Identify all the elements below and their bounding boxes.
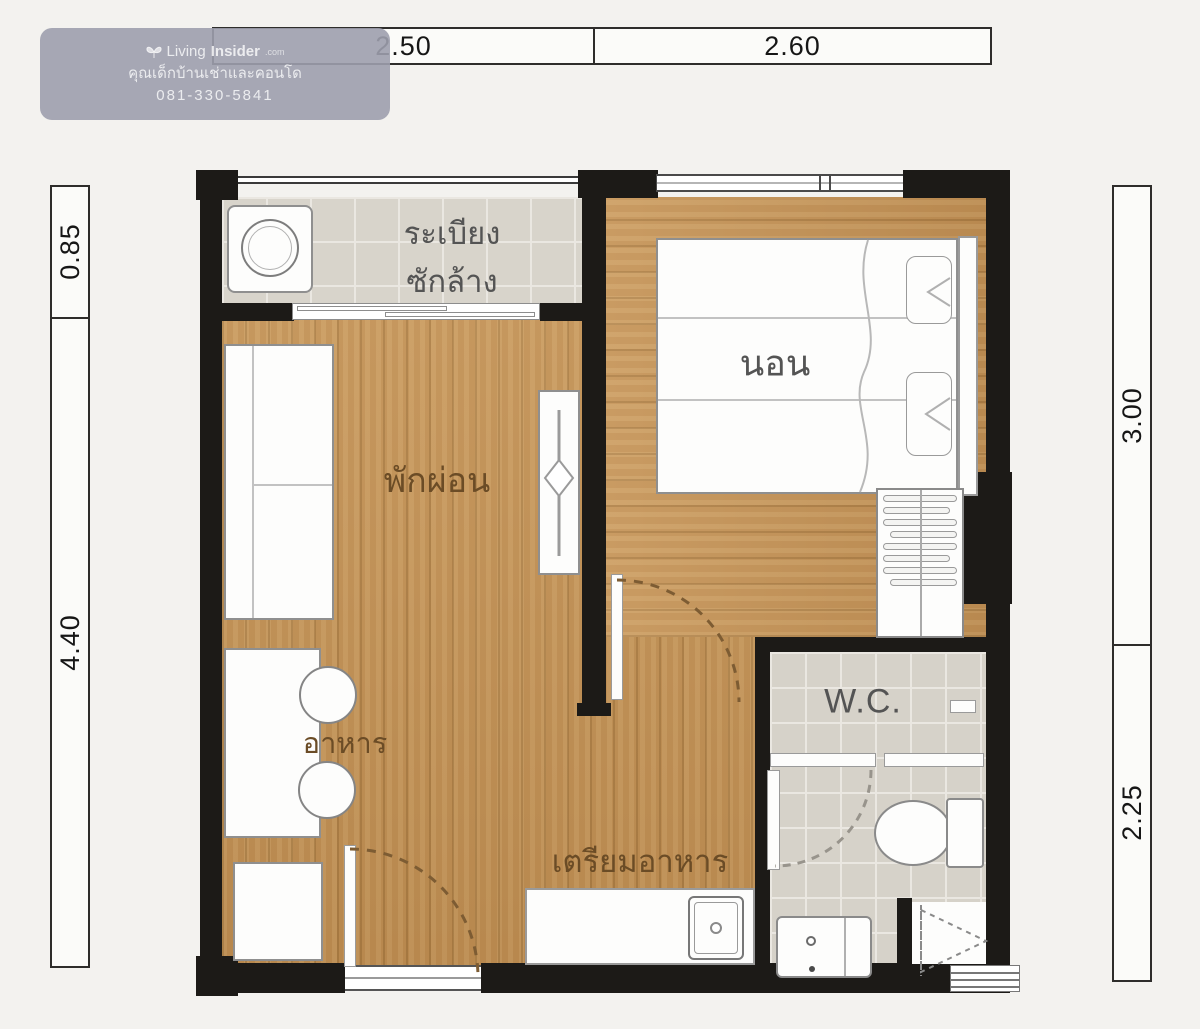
balcony-railing	[238, 176, 582, 184]
dimension-right-1: 3.00	[1114, 187, 1150, 644]
entrance-threshold	[345, 965, 481, 991]
watermark-badge: LivingInsider.com คุณเด็กบ้านเช่าและคอนโ…	[40, 28, 390, 120]
sliding-panel	[385, 312, 535, 317]
toilet-bowl	[874, 800, 952, 866]
balcony-label: ระเบียง ซักล้าง	[404, 210, 501, 306]
wall-top-middle	[578, 170, 658, 198]
dimension-bar-right: 3.00 2.25	[1112, 185, 1152, 982]
clothes-hanger	[890, 531, 957, 538]
kitchen-label: เตรียมอาหาร	[552, 836, 729, 886]
washing-machine-drum-inner	[248, 226, 292, 270]
louver-slat	[951, 986, 1019, 988]
sofa-cushion-line	[252, 484, 332, 486]
wc-shower-partition	[884, 753, 984, 767]
bedroom-window	[656, 174, 906, 192]
watermark-logo-light: Living	[167, 41, 206, 63]
tv-console	[538, 390, 580, 575]
bedroom-label: นอน	[740, 335, 811, 392]
pillow	[906, 256, 952, 324]
wc-shower-partition	[770, 753, 876, 767]
floor-plan-page: { "watermark": { "logo_icon": "butterfly…	[0, 0, 1200, 1029]
sofa	[224, 344, 334, 620]
balcony-label-line2: ซักล้าง	[404, 258, 501, 306]
washbasin-divider	[844, 918, 846, 976]
dimension-left-2-text: 4.40	[55, 614, 86, 671]
vent-louver	[950, 965, 1020, 992]
clothes-hanger	[883, 507, 950, 514]
dimension-left-1-text: 0.85	[55, 224, 86, 281]
watermark-tagline: คุณเด็กบ้านเช่าและคอนโด	[128, 63, 302, 85]
kitchen-sink	[688, 896, 744, 960]
dimension-right-2-text: 2.25	[1117, 785, 1148, 842]
bed-headboard	[958, 236, 978, 496]
dimension-right-2: 2.25	[1114, 644, 1150, 980]
balcony-label-line1: ระเบียง	[404, 210, 501, 258]
washing-machine-drum	[241, 219, 299, 277]
wall-living-bedroom	[582, 197, 606, 707]
clothes-hanger	[890, 579, 957, 586]
threshold-line	[345, 977, 481, 979]
dimension-bar-left: 0.85 4.40	[50, 185, 90, 968]
wall-wc-front	[755, 637, 1010, 652]
toilet-tank	[946, 798, 984, 868]
window-glass-line	[657, 182, 905, 184]
bedroom-door-leaf	[611, 574, 623, 700]
window-mullion	[819, 176, 821, 190]
dimension-left-1: 0.85	[52, 187, 88, 317]
wall-shaft-divider	[897, 898, 912, 965]
wardrobe-rail	[920, 490, 922, 636]
sliding-panel	[297, 306, 447, 311]
wall-left	[200, 170, 222, 993]
louver-slat	[951, 979, 1019, 981]
washbasin	[776, 916, 872, 978]
washbasin-faucet	[806, 936, 816, 946]
wardrobe	[876, 488, 964, 638]
refrigerator	[233, 862, 323, 961]
pillow	[906, 372, 952, 456]
kitchen-faucet	[710, 922, 722, 934]
dimension-left-2: 4.40	[52, 317, 88, 966]
louver-slat	[951, 972, 1019, 974]
wc-label: W.C.	[824, 683, 902, 722]
washbasin-drain	[809, 966, 815, 972]
watermark-logo-row: LivingInsider.com	[146, 41, 285, 63]
wall-end-cap	[577, 703, 611, 716]
dining-stool	[299, 666, 357, 724]
service-shaft	[912, 902, 986, 964]
wall-bottom-segment-2	[481, 963, 1010, 993]
wc-door-leaf	[767, 770, 780, 870]
window-mullion	[829, 176, 831, 190]
dimension-top-2: 2.60	[593, 29, 990, 63]
watermark-logo-bold: Insider	[211, 41, 260, 63]
dimension-right-1-text: 3.00	[1117, 387, 1148, 444]
washing-machine	[227, 205, 313, 293]
wall-bottom-segment-1	[200, 963, 345, 993]
butterfly-logo-icon	[146, 45, 162, 59]
living-label: พักผ่อน	[384, 453, 491, 507]
sofa-back-line	[252, 346, 254, 618]
wall-balcony-segment-left	[222, 303, 294, 321]
watermark-phone: 081-330-5841	[156, 85, 273, 107]
entrance-door-leaf	[344, 845, 356, 967]
clothes-hanger	[883, 555, 950, 562]
dining-stool	[298, 761, 356, 819]
dining-label: อาหาร	[303, 720, 388, 766]
watermark-logo-suffix: .com	[265, 46, 285, 59]
bidet-sprayer	[950, 700, 976, 713]
